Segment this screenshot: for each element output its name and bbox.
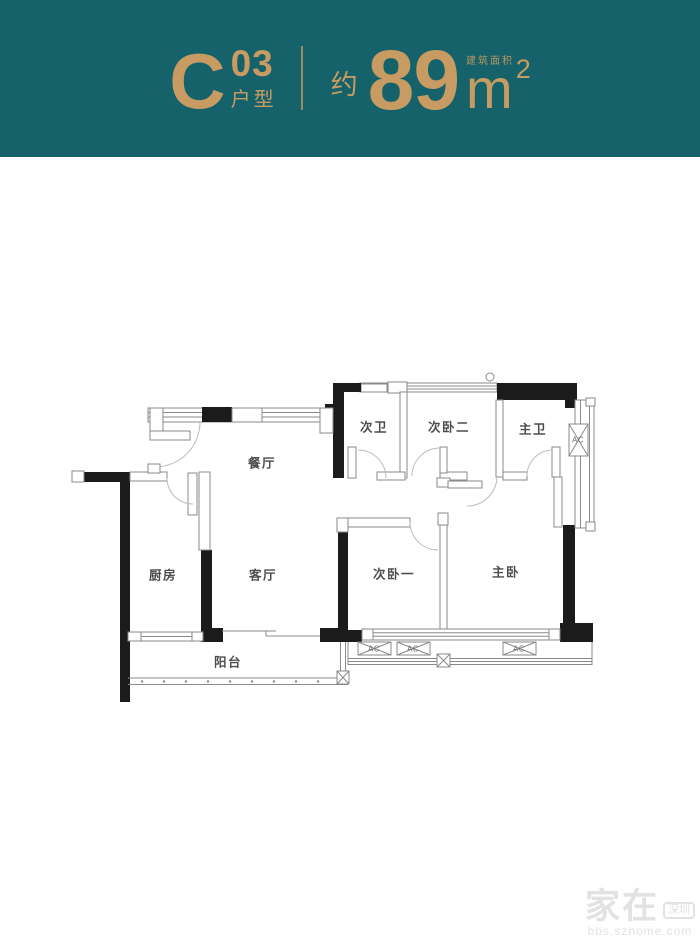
ac-label: AC: [407, 645, 419, 654]
room-label-balcony: 阳台: [214, 652, 242, 671]
ac-label: AC: [368, 645, 380, 654]
window-kitchen-bottom: [128, 632, 203, 641]
watermark-city-tag: 深圳: [663, 902, 695, 919]
ac-platform: [348, 642, 592, 667]
watermark-brand: 家在: [585, 889, 659, 924]
room-label-living: 客厅: [249, 565, 277, 584]
room-label-bedroom-2: 次卧二: [428, 417, 470, 436]
ac-label: AC: [572, 436, 584, 445]
watermark-site: bbs.szhome.com: [588, 924, 693, 938]
bay-window-right: [569, 398, 595, 531]
floor-plan: [0, 0, 700, 942]
room-label-dining: 餐厅: [248, 453, 276, 472]
kitchen-walls: [130, 464, 210, 550]
window-top: [360, 382, 497, 393]
living-sliding-door: [222, 631, 320, 636]
ac-label: AC: [513, 645, 525, 654]
room-label-bedroom-1: 次卧一: [373, 564, 415, 583]
room-label-kitchen: 厨房: [149, 565, 177, 584]
watermark: 家在 深圳 bbs.szhome.com: [585, 889, 695, 938]
room-label-bath-2: 次卫: [360, 417, 388, 436]
window-bedrooms-bottom: [362, 629, 560, 640]
room-label-master-bedroom: 主卧: [492, 562, 520, 581]
room-label-master-bath: 主卫: [519, 419, 547, 438]
